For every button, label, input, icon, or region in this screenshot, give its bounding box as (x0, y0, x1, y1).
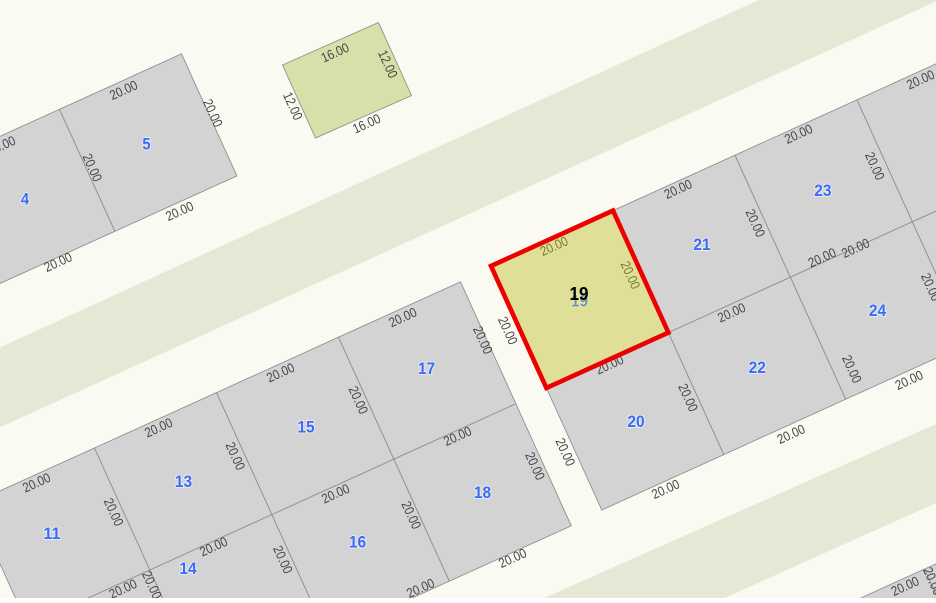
svg-text:14: 14 (179, 559, 197, 578)
svg-text:18: 18 (474, 483, 491, 502)
svg-text:16: 16 (349, 533, 366, 552)
svg-text:4: 4 (21, 190, 30, 209)
svg-text:23: 23 (814, 181, 831, 200)
svg-text:24: 24 (869, 301, 887, 320)
svg-text:5: 5 (142, 135, 150, 154)
svg-text:20: 20 (627, 412, 644, 431)
svg-text:21: 21 (693, 235, 710, 254)
svg-text:11: 11 (43, 524, 60, 543)
svg-text:15: 15 (297, 418, 314, 437)
svg-text:17: 17 (418, 359, 435, 378)
svg-text:13: 13 (175, 472, 192, 491)
svg-text:19: 19 (570, 284, 589, 304)
svg-text:22: 22 (749, 358, 766, 377)
